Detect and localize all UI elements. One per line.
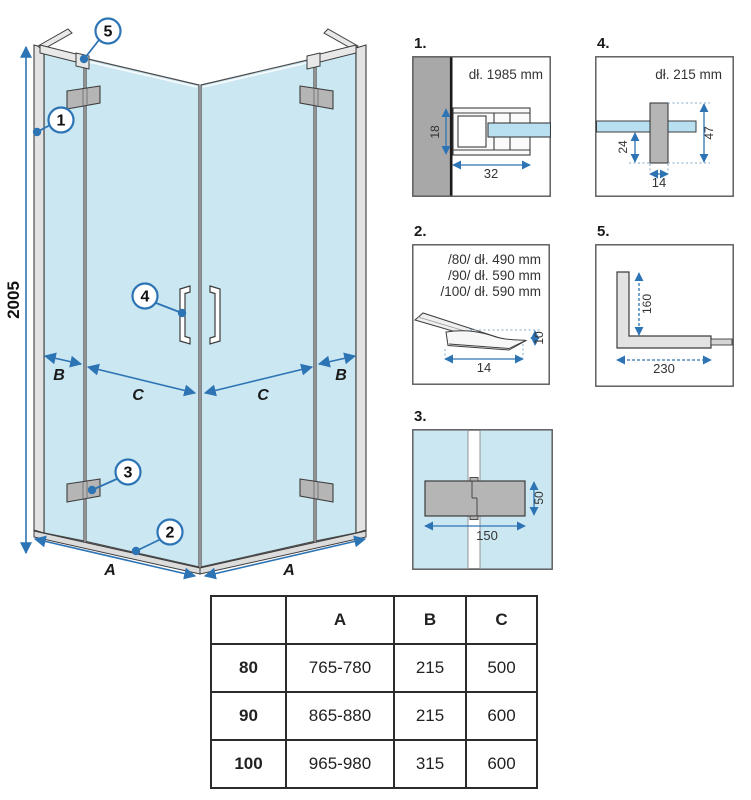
- handle-bar-section: [650, 103, 668, 163]
- dim-a-right-label: A: [282, 562, 295, 579]
- detail-3-hinge: 3. 50 150: [412, 409, 553, 575]
- detail-5-dim-230: 230: [653, 361, 675, 376]
- detail-4-dim-47: 47: [702, 126, 716, 140]
- b-cell: 315: [394, 740, 466, 788]
- dim-c-right-label: C: [257, 387, 269, 404]
- dim-b-right-label: B: [335, 367, 347, 384]
- a-cell: 865-880: [286, 692, 394, 740]
- table-row-90: 90 865-880 215 600: [211, 692, 537, 740]
- detail-5-stabilizer: 5. 160 230: [595, 224, 734, 390]
- height-dimension-label: 2005: [4, 281, 23, 319]
- stabilizer-bars: [38, 29, 358, 69]
- bracket-rod: [711, 339, 732, 345]
- dim-b-left-label: B: [53, 367, 65, 384]
- c-cell: 600: [466, 740, 537, 788]
- detail-1-wall-profile: 1. dł. 1985 mm 18 32: [412, 36, 551, 202]
- detail-3-dim-150: 150: [476, 528, 498, 543]
- detail-2-dim-10: 10: [532, 331, 546, 345]
- glass-section: [597, 121, 697, 132]
- table-row-80: 80 765-780 215 500: [211, 644, 537, 692]
- detail-1-dim-18: 18: [428, 125, 442, 139]
- detail-5-label: 5.: [597, 224, 610, 240]
- header-size-cell: [211, 596, 286, 644]
- size-cell: 100: [211, 740, 286, 788]
- detail-4-label: 4.: [597, 36, 610, 52]
- detail-2-dim-14: 14: [477, 360, 491, 375]
- wall-profile-right: [356, 45, 366, 533]
- detail-1-dim-32: 32: [484, 166, 498, 181]
- b-cell: 215: [394, 692, 466, 740]
- detail-4-dim-24: 24: [616, 140, 630, 154]
- hinge-plate: [425, 481, 525, 516]
- detail-3-label: 3.: [414, 409, 427, 425]
- detail-4-length: dł. 215 mm: [655, 67, 722, 82]
- detail-2-line-100: /100/ dł. 590 mm: [440, 284, 541, 299]
- size-cell: 90: [211, 692, 286, 740]
- header-c-cell: C: [466, 596, 537, 644]
- c-cell: 600: [466, 692, 537, 740]
- detail-2-line-80: /80/ dł. 490 mm: [448, 252, 541, 267]
- size-table: A B C 80 765-780 215 500 90 865-880 215 …: [210, 595, 538, 789]
- detail-5-dim-160: 160: [640, 294, 654, 314]
- detail-2-label: 2.: [414, 224, 427, 240]
- detail-2-line-90: /90/ dł. 590 mm: [448, 268, 541, 283]
- callout-1-number: 1: [57, 113, 66, 130]
- callout-4-number: 4: [141, 289, 150, 306]
- a-cell: 965-980: [286, 740, 394, 788]
- callout-5-number: 5: [104, 24, 113, 41]
- callout-2-number: 2: [166, 525, 175, 542]
- dim-c-left-label: C: [132, 387, 144, 404]
- detail-4-handle: 4. dł. 215 mm 47 24 14: [595, 36, 734, 202]
- header-a-cell: A: [286, 596, 394, 644]
- glass-panel-right-fixed: [316, 49, 356, 541]
- dim-a-left-label: A: [103, 562, 116, 579]
- b-cell: 215: [394, 644, 466, 692]
- a-cell: 765-780: [286, 644, 394, 692]
- wall-profile-left: [34, 45, 44, 533]
- detail-2-bottom-seal: 2. /80/ dł. 490 mm /90/ dł. 590 mm /100/…: [412, 224, 551, 390]
- callout-3-number: 3: [124, 465, 133, 482]
- table-row-100: 100 965-980 315 600: [211, 740, 537, 788]
- detail-3-dim-50: 50: [532, 491, 546, 505]
- main-drawing: 2005 B C C B A A: [0, 0, 410, 600]
- shower-enclosure-spec-sheet: 2005 B C C B A A: [0, 0, 751, 800]
- detail-1-length: dł. 1985 mm: [469, 67, 543, 82]
- header-b-cell: B: [394, 596, 466, 644]
- detail-1-label: 1.: [414, 36, 427, 52]
- detail-4-dim-14: 14: [652, 175, 666, 190]
- table-header-row: A B C: [211, 596, 537, 644]
- c-cell: 500: [466, 644, 537, 692]
- size-cell: 80: [211, 644, 286, 692]
